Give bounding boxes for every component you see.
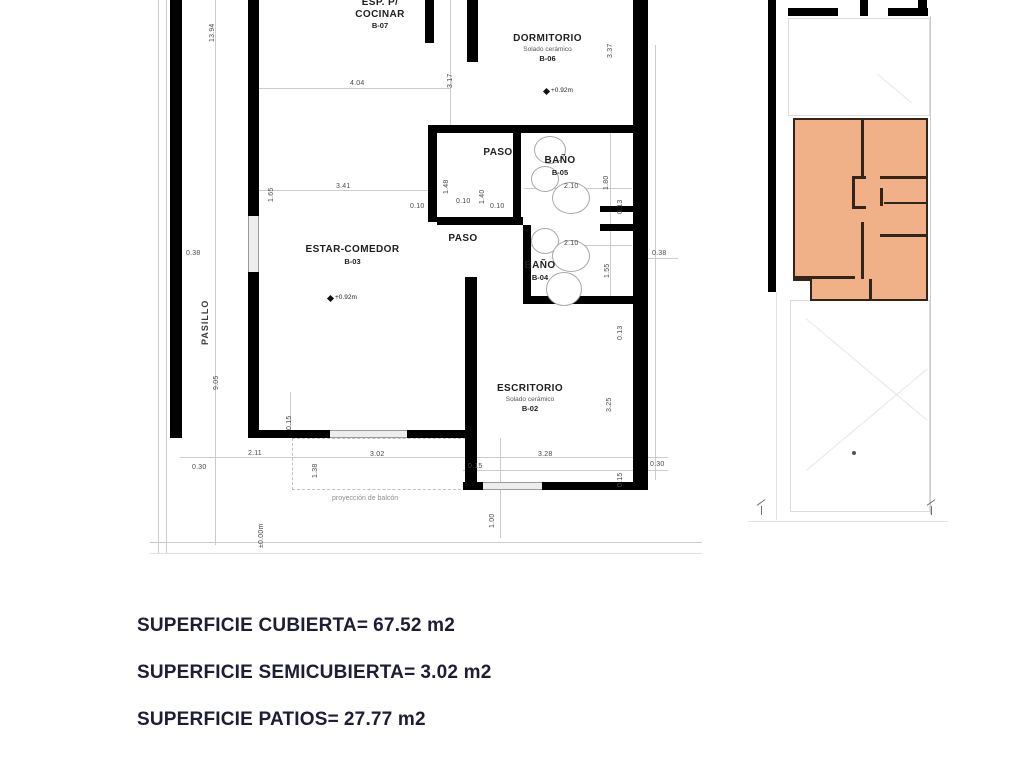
drawing-sheet: ESP. P/ COCINAR B-07 DORMITORIO Solado c… bbox=[0, 0, 1024, 768]
lot-boundary-line bbox=[776, 292, 777, 520]
level-marker-icon bbox=[543, 88, 550, 95]
section-line bbox=[150, 553, 702, 554]
dimension-label: 1.38 bbox=[312, 464, 319, 478]
wall bbox=[600, 206, 648, 212]
dimension-label: 1.65 bbox=[268, 188, 275, 202]
wall bbox=[248, 430, 330, 438]
dimension-line bbox=[655, 45, 656, 480]
summary-line: SUPERFICIE SEMICUBIERTA=3.02 m2 bbox=[137, 662, 492, 684]
wall bbox=[248, 0, 259, 216]
room-label-dormitorio: DORMITORIO Solado cerámico B-06 bbox=[490, 33, 605, 64]
wall bbox=[467, 0, 478, 62]
dimension-label: 3.41 bbox=[336, 183, 350, 190]
unit-wall bbox=[884, 202, 928, 204]
room-label-kitchen: ESP. P/ COCINAR B-07 bbox=[330, 0, 430, 31]
window bbox=[330, 430, 407, 438]
dimension-line bbox=[648, 258, 678, 259]
wall bbox=[513, 133, 521, 218]
survey-mark bbox=[761, 506, 762, 515]
room-label-pasillo: PASILLO bbox=[200, 300, 210, 345]
dimension-label: 3.17 bbox=[447, 74, 454, 88]
summary-line: SUPERFICIE PATIOS=27.77 m2 bbox=[137, 709, 426, 731]
wall bbox=[248, 272, 259, 438]
dimension-label: 3.37 bbox=[607, 44, 614, 58]
dimension-label: 1.48 bbox=[443, 180, 450, 194]
property-line bbox=[166, 0, 167, 553]
dimension-label: 2.10 bbox=[564, 240, 578, 247]
dimension-label: 2.10 bbox=[564, 183, 578, 190]
dimension-label: 2.11 bbox=[248, 450, 262, 457]
unit-wall bbox=[861, 118, 864, 178]
lot-boundary-line bbox=[748, 521, 948, 522]
annotation-label: proyección de balcón bbox=[332, 495, 398, 502]
window bbox=[248, 216, 259, 272]
section-line bbox=[150, 542, 702, 543]
dimension-label: 0.15 bbox=[286, 416, 293, 430]
wall bbox=[523, 296, 648, 304]
unit-wall bbox=[880, 188, 883, 206]
wall bbox=[428, 125, 437, 222]
dimension-label: 0.38 bbox=[652, 250, 666, 257]
dimension-label: 0.30 bbox=[192, 464, 206, 471]
wall bbox=[788, 8, 838, 16]
dimension-line bbox=[259, 190, 437, 191]
dimension-label: 0.13 bbox=[617, 326, 624, 340]
wall bbox=[600, 224, 648, 231]
dimension-label: 1.40 bbox=[479, 190, 486, 204]
room-label-bano-05: BAÑO B-05 bbox=[536, 155, 584, 177]
unit-wall bbox=[793, 276, 855, 279]
unit-wall bbox=[880, 176, 928, 179]
summary-line: SUPERFICIE CUBIERTA=67.52 m2 bbox=[137, 615, 455, 637]
dimension-label: 3.02 bbox=[370, 451, 384, 458]
wall bbox=[463, 482, 483, 490]
wall bbox=[918, 0, 927, 16]
dimension-label: 1.55 bbox=[604, 264, 611, 278]
unit-wall bbox=[869, 279, 872, 301]
lot-boundary-line bbox=[930, 16, 931, 514]
survey-mark bbox=[757, 499, 766, 506]
dimension-line bbox=[450, 0, 451, 125]
dimension-label: 0.10 bbox=[456, 198, 470, 205]
dimension-label: 0.10 bbox=[410, 203, 424, 210]
balcony-projection-outline bbox=[292, 438, 476, 490]
room-label-escritorio: ESCRITORIO Solado cerámico B-02 bbox=[470, 383, 590, 414]
wall bbox=[633, 0, 648, 490]
dimension-label: ±0.00m bbox=[258, 524, 265, 549]
dimension-label: 13.94 bbox=[209, 23, 216, 42]
dimension-label: 1.00 bbox=[489, 514, 496, 528]
dimension-label: 0.15 bbox=[468, 463, 482, 470]
property-line bbox=[158, 0, 159, 553]
wall bbox=[428, 125, 648, 133]
dimension-label: 0.10 bbox=[490, 203, 504, 210]
survey-mark bbox=[931, 506, 932, 515]
dimension-label: 9.05 bbox=[213, 376, 220, 390]
unit-wall bbox=[852, 206, 866, 209]
wall bbox=[407, 430, 475, 438]
wall bbox=[542, 482, 648, 490]
dimension-label: 0.15 bbox=[617, 473, 624, 487]
level-marker-icon bbox=[327, 295, 334, 302]
reference-dot bbox=[852, 451, 856, 455]
dimension-label: 4.04 bbox=[350, 80, 364, 87]
dimension-label: 3.28 bbox=[538, 451, 552, 458]
wall bbox=[170, 0, 182, 438]
unit-wall bbox=[880, 234, 928, 237]
dimension-label: 0.30 bbox=[650, 461, 664, 468]
wall bbox=[860, 0, 868, 16]
level-marker: +0.92m bbox=[328, 295, 357, 302]
dimension-label: 0.13 bbox=[617, 200, 624, 214]
dimension-label: 1.80 bbox=[603, 176, 610, 190]
room-label-estar: ESTAR-COMEDOR B-03 bbox=[295, 244, 410, 266]
room-label-paso-upper: PASO bbox=[473, 147, 523, 159]
unit-wall bbox=[852, 176, 855, 209]
wall bbox=[437, 217, 523, 225]
dimension-line bbox=[215, 0, 216, 545]
level-marker: +0.92m bbox=[544, 88, 573, 95]
dimension-line bbox=[259, 88, 451, 89]
room-label-bano-04: BAÑO B-04 bbox=[516, 260, 564, 282]
room-label-paso-lower: PASO bbox=[438, 233, 488, 245]
unit-wall bbox=[861, 222, 864, 279]
wall bbox=[768, 0, 776, 292]
dimension-label: 0.38 bbox=[186, 250, 200, 257]
window bbox=[483, 482, 542, 490]
dimension-label: 3.25 bbox=[606, 398, 613, 412]
